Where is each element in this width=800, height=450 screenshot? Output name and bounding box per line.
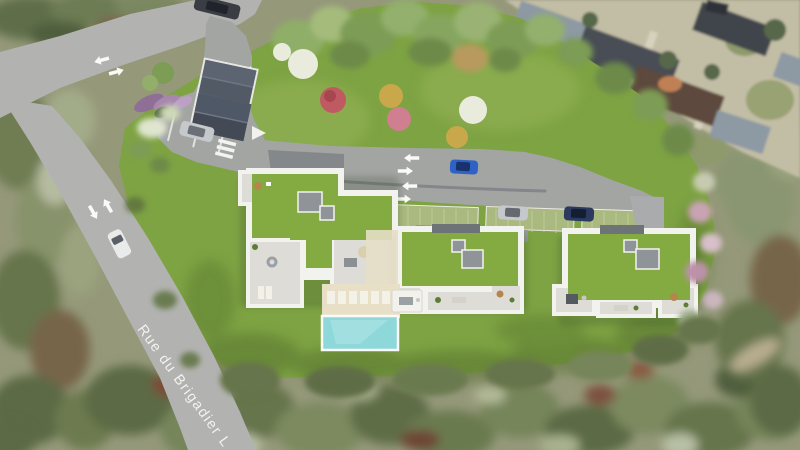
building-3 xyxy=(552,225,700,326)
skylight xyxy=(298,192,322,212)
pergola xyxy=(392,290,422,312)
tree-white-flowering xyxy=(459,96,487,124)
skylight xyxy=(320,206,334,220)
entrance-canopy xyxy=(600,225,644,234)
tree-yellow xyxy=(446,126,468,148)
tree-pink-flowering xyxy=(387,107,411,131)
skylight xyxy=(462,250,483,268)
garden-path xyxy=(366,230,398,292)
car-navy-parking xyxy=(564,206,595,222)
car-blue-on-internal-road xyxy=(450,159,479,174)
roof-terrace xyxy=(492,286,520,310)
roof-terrace xyxy=(250,242,300,304)
car-silver-parking xyxy=(498,205,529,221)
skylight xyxy=(636,249,659,269)
entrance-canopy xyxy=(432,224,480,233)
site-plan-aerial-view: Rue du Brigadier L xyxy=(0,0,800,450)
skylight xyxy=(624,240,637,252)
tree-yellow xyxy=(379,84,403,108)
tree-white-flowering xyxy=(273,43,291,61)
site-plan-canvas: Rue du Brigadier L xyxy=(0,0,800,450)
tree-green xyxy=(142,75,158,91)
tree-white-flowering xyxy=(288,49,318,79)
